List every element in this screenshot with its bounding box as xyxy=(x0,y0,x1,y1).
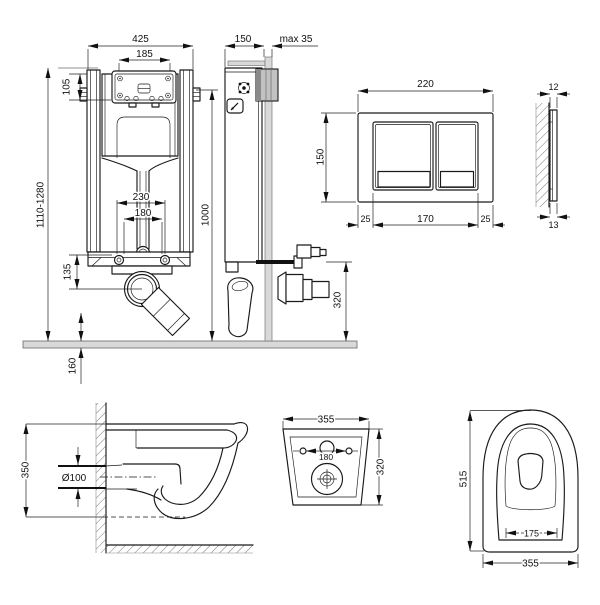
floor-hatch xyxy=(106,545,253,553)
plate-profile xyxy=(550,110,557,201)
dim-plate-height: 150 xyxy=(316,148,327,165)
bowl-side-dimensions: 350 Ø100 xyxy=(21,424,107,517)
dim-fixing-hole-spacing: 180 xyxy=(319,452,333,462)
dim-bowl-height: 350 xyxy=(21,461,32,478)
mounting-stud-left xyxy=(115,256,124,265)
flush-plate-front-view: 220 150 25 170 25 xyxy=(316,79,506,228)
fixing-hole-left xyxy=(300,448,306,454)
dim-outlet-drop: 135 xyxy=(63,263,74,280)
frame-front-view: 425 185 105 1110-1280 230 180 135 1000 xyxy=(36,34,219,384)
flush-plate-side-view: 12 13 xyxy=(536,82,570,230)
service-tag-icon xyxy=(227,99,243,113)
dim-plate-buttons-width: 170 xyxy=(417,214,434,225)
soil-pipe-connection xyxy=(278,272,329,304)
dim-plate-thickness-top: 12 xyxy=(548,82,558,92)
dim-outlet-height: 320 xyxy=(333,291,344,308)
wall-bracket-left xyxy=(80,88,87,101)
dim-plate-width: 220 xyxy=(417,79,434,90)
dim-seat-hole-spacing: 175 xyxy=(524,529,539,539)
dim-frame-width: 425 xyxy=(132,34,149,45)
dim-outlet-diameter: Ø100 xyxy=(62,473,87,484)
flush-plate-body xyxy=(358,113,493,202)
wall-hatch xyxy=(536,103,549,207)
dim-plate-margin-left: 25 xyxy=(360,214,370,224)
dim-bowl-back-width: 355 xyxy=(318,415,335,426)
bowl-top-view: 515 175 355 xyxy=(459,410,579,570)
bowl-back-view: 180 355 320 xyxy=(283,415,387,506)
wall-finish-cap xyxy=(228,61,265,66)
technical-drawing-canvas: 425 185 105 1110-1280 230 180 135 1000 xyxy=(0,0,600,600)
outlet-elbow xyxy=(125,272,190,336)
dim-bowl-back-height: 320 xyxy=(376,458,387,475)
dim-bowl-top-width: 355 xyxy=(522,559,539,570)
dim-frame-height-range: 1110-1280 xyxy=(36,181,47,228)
dim-plate-thickness-bottom: 13 xyxy=(548,220,558,230)
dim-plate-margin-right: 25 xyxy=(480,214,490,224)
wall-hung-bowl-profile xyxy=(100,423,248,519)
dim-access-height: 105 xyxy=(62,78,73,95)
inspection-access-box xyxy=(112,71,176,107)
dim-bowl-depth: 515 xyxy=(459,470,470,487)
dim-access-width: 185 xyxy=(136,49,153,60)
frame-foot-bracket xyxy=(226,262,238,272)
dim-stud-inner: 180 xyxy=(135,208,152,219)
frame-side-view: 150 max 35 320 xyxy=(225,34,352,341)
bowl-side-view: 350 Ø100 xyxy=(21,403,254,553)
dim-floor-offset: 160 xyxy=(68,357,79,374)
dim-stud-outer: 230 xyxy=(133,192,150,203)
flush-plate-side-mounted xyxy=(256,69,278,101)
floor-slab xyxy=(23,341,357,348)
dim-wall-max-thickness: max 35 xyxy=(280,34,313,45)
mounting-stud-right xyxy=(161,256,170,265)
installation-diagram-page: 425 185 105 1110-1280 230 180 135 1000 xyxy=(0,0,600,600)
dim-frame-depth: 150 xyxy=(235,34,252,45)
wall-hatch xyxy=(96,403,106,553)
fixing-hole-right xyxy=(346,448,352,454)
dim-fixing-height: 1000 xyxy=(201,203,212,226)
drain-elbow-side xyxy=(228,278,253,337)
